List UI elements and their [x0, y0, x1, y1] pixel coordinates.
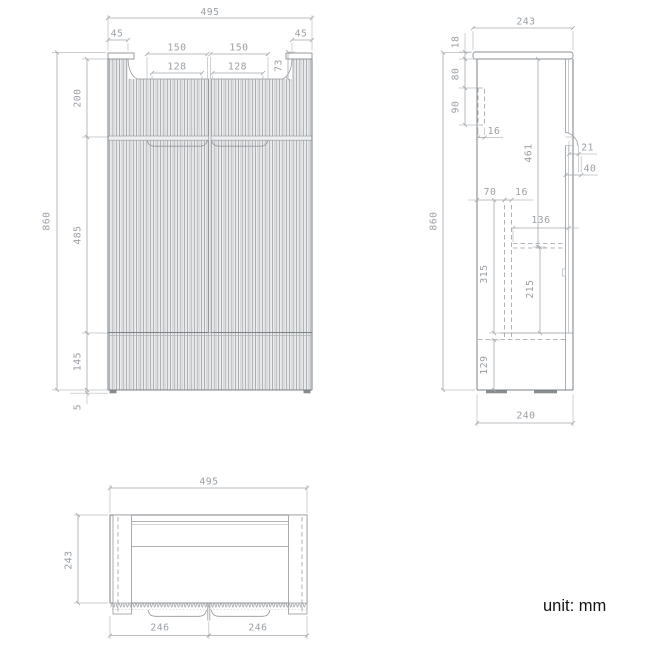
side-door-edge: [566, 59, 578, 390]
dim-front-foot-height: 5: [73, 404, 84, 410]
dim-side-shelf-clearance: 215: [525, 279, 536, 298]
dim-front-right-handle-inner: 128: [228, 62, 247, 73]
unit-label: unit: mm: [543, 597, 643, 616]
dim-side-back-offset: 70: [484, 187, 497, 198]
dim-side-interior-height: 461: [524, 143, 535, 162]
technical-drawing: 495 45 45 150 150 128 128 73 200 485 145…: [0, 0, 650, 650]
front-view: 495 45 45 150 150 128 128 73 200 485 145…: [42, 7, 313, 410]
front-feet: [110, 391, 311, 394]
top-front-edge: [110, 603, 307, 621]
dim-front-overall-height: 860: [42, 211, 53, 230]
dim-side-lower-interior: 315: [479, 264, 490, 283]
side-dimension-lines: [443, 28, 581, 423]
dim-side-drawer-interior: 129: [479, 355, 490, 374]
dim-side-bracket-height: 90: [451, 101, 462, 114]
dim-top-left-door: 246: [150, 623, 169, 634]
front-door-gap: [209, 79, 212, 333]
dim-top-overall-width: 495: [199, 477, 218, 488]
dim-front-left-handle-inner: 128: [167, 62, 186, 73]
dim-front-left-handle: 150: [167, 43, 186, 54]
dim-side-handle-depth: 21: [581, 143, 594, 154]
side-feet: [486, 391, 557, 394]
dim-side-handle-clearance: 40: [584, 164, 597, 175]
dim-front-right-post: 45: [295, 29, 308, 40]
front-top-recess: [128, 59, 292, 79]
dim-side-panel-gap: 16: [515, 187, 528, 198]
dim-front-top-recess: 73: [274, 59, 285, 72]
drawing-canvas: 495 45 45 150 150 128 128 73 200 485 145…: [0, 0, 650, 650]
dim-front-overall-width: 495: [200, 7, 219, 18]
dim-side-overall-depth: 243: [516, 17, 535, 28]
top-outline: [110, 515, 307, 603]
dim-front-right-handle: 150: [229, 43, 248, 54]
dim-top-overall-depth: 243: [64, 550, 75, 569]
dim-side-bracket-offset: 80: [451, 68, 462, 81]
front-top-caps: [108, 53, 312, 59]
side-view: 243 18 80 90 16 461 21 40 70 16 136 860 …: [429, 17, 599, 427]
side-extension-lines: [443, 31, 598, 427]
dim-top-right-door: 246: [248, 623, 267, 634]
dim-side-top-thickness: 18: [451, 36, 462, 49]
dim-side-bracket-width: 16: [488, 126, 501, 137]
dim-front-door-section: 485: [73, 225, 84, 244]
dim-side-shelf-depth: 136: [531, 215, 550, 226]
top-view: 495 243 246 246: [64, 477, 308, 640]
dim-side-overall-height: 860: [429, 211, 440, 230]
dim-front-drawer-section: 145: [73, 352, 84, 371]
dim-side-bottom-depth: 240: [516, 411, 535, 422]
dim-front-left-post: 45: [111, 29, 124, 40]
dim-front-upper-section: 200: [73, 88, 84, 107]
